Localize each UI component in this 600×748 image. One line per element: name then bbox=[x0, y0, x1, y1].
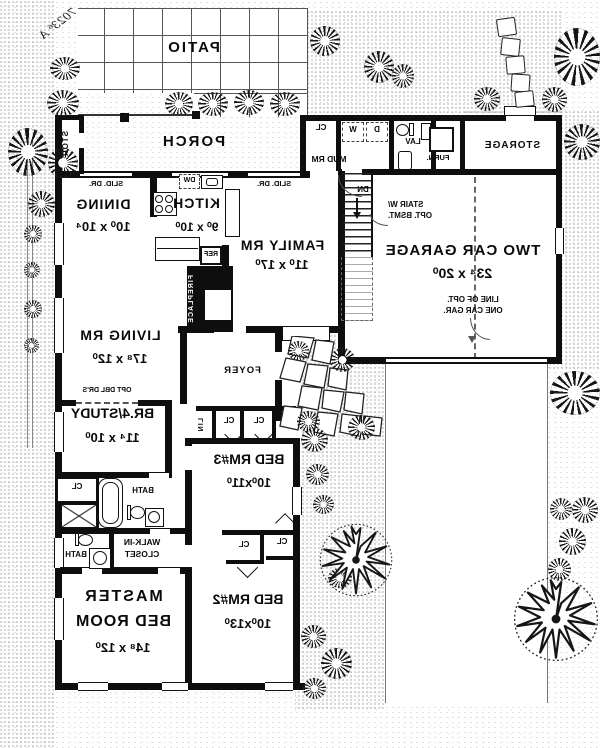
stepping-stone bbox=[505, 55, 525, 75]
bath-label: BATH bbox=[122, 487, 164, 496]
bed2-label: BED RM#2 bbox=[200, 592, 296, 608]
dryer-label: D bbox=[366, 126, 388, 135]
bush-icon bbox=[165, 92, 193, 116]
sink-icon bbox=[93, 551, 107, 565]
wall bbox=[389, 121, 394, 171]
window bbox=[54, 298, 64, 353]
toilet-icon bbox=[75, 533, 79, 546]
porch-post bbox=[192, 111, 200, 119]
window bbox=[54, 598, 64, 640]
porch-edge bbox=[78, 114, 199, 116]
dining-label: DINING bbox=[58, 197, 148, 213]
arrow-icon bbox=[468, 336, 476, 343]
sink-icon bbox=[148, 511, 160, 523]
br4-study-dim: 11⁴ x 10⁰ bbox=[60, 431, 165, 446]
toilet-icon bbox=[78, 534, 93, 546]
living-room-dim: 17⁸ x 12⁰ bbox=[68, 352, 172, 367]
sliding-door bbox=[80, 172, 132, 177]
garage-label: TWO CAR GARAGE bbox=[370, 243, 555, 260]
bush-icon bbox=[288, 341, 309, 361]
opt-dbl-doors-label: OPT DBL DR'S bbox=[74, 387, 140, 395]
tree-icon bbox=[554, 28, 600, 86]
bed3-label: BED RM#3 bbox=[200, 452, 298, 468]
furnace-icon bbox=[429, 127, 454, 152]
sliding-door-label: SLID. DR. bbox=[248, 180, 300, 188]
arrow-icon bbox=[353, 212, 361, 219]
closet-label: CL bbox=[216, 417, 242, 426]
furnace-label: FURN. bbox=[416, 154, 460, 162]
tree-icon bbox=[542, 87, 567, 112]
sliding-door bbox=[248, 172, 300, 177]
door-gap bbox=[158, 568, 180, 574]
stair-note-line2: OPT. BSMT. bbox=[388, 212, 450, 221]
tree-icon bbox=[24, 262, 40, 278]
sliding-door-label: SLID. DR. bbox=[80, 180, 132, 188]
lav-label: LAV bbox=[396, 138, 430, 147]
window bbox=[292, 487, 302, 515]
fireplace-label: FIREPLACE bbox=[188, 269, 201, 329]
wall bbox=[260, 530, 264, 564]
linen-closet-label: LIN bbox=[198, 411, 212, 439]
laundry-sink-icon bbox=[398, 151, 412, 170]
patio-label: PATIO bbox=[78, 40, 308, 57]
foyer-label: FOYER bbox=[214, 366, 270, 377]
br4-study-label: BR.4/STUDY bbox=[60, 406, 165, 422]
kitchen-counter bbox=[157, 248, 198, 249]
tree-icon bbox=[8, 128, 48, 176]
tree-icon bbox=[310, 26, 340, 56]
family-room-dim: 11⁰ x 17⁰ bbox=[226, 258, 338, 273]
door-gap bbox=[184, 446, 193, 470]
burner-icon bbox=[155, 195, 163, 203]
dishwasher-label: DW bbox=[179, 177, 200, 185]
stepping-stone bbox=[500, 37, 521, 57]
bed2-dim: 10⁰x13⁰ bbox=[200, 617, 296, 632]
toilet-icon bbox=[130, 506, 145, 519]
bush-icon bbox=[348, 415, 375, 440]
large-tree-icon bbox=[318, 522, 394, 598]
opt-garage-note-line2: ONE CAR GAR. bbox=[428, 307, 518, 316]
bathtub-icon bbox=[102, 482, 119, 524]
window bbox=[555, 228, 564, 254]
closet-label: CL bbox=[304, 124, 338, 133]
stairs-dn-label: DN bbox=[350, 186, 376, 195]
walkin-label-line1: WALK-IN bbox=[112, 538, 172, 548]
wall bbox=[165, 400, 172, 478]
closet-label: CL bbox=[57, 483, 97, 492]
window bbox=[265, 682, 293, 691]
garage-door bbox=[386, 358, 547, 363]
mirrored-floor-plan: 7023⁶ A PATIO PORCH bbox=[0, 0, 600, 748]
toilet-icon bbox=[396, 124, 409, 136]
door-gap bbox=[149, 473, 169, 478]
tree-icon bbox=[48, 148, 78, 178]
master-label-line1: MASTER bbox=[66, 588, 180, 606]
tree-icon bbox=[303, 678, 326, 699]
storage-label: STORAGE bbox=[466, 140, 558, 151]
closet-label: CL bbox=[267, 538, 297, 547]
tree-icon bbox=[364, 51, 394, 83]
kitchen-label: KITCH bbox=[164, 196, 228, 212]
family-room-label: FAMILY RM bbox=[226, 238, 338, 254]
wall bbox=[180, 330, 187, 404]
tree-icon bbox=[550, 371, 600, 415]
wall bbox=[79, 115, 84, 133]
staircase-optional bbox=[341, 257, 373, 321]
tree-icon bbox=[47, 90, 79, 116]
arrow-icon bbox=[356, 198, 358, 212]
garage-dim: 23⁴ x 20⁰ bbox=[370, 266, 555, 282]
stair-note-line1: STAIR W/ bbox=[388, 201, 450, 210]
tree-icon bbox=[392, 64, 414, 88]
master-dim: 14⁸ x 12⁰ bbox=[66, 641, 180, 656]
toilet-icon bbox=[127, 505, 131, 520]
stepping-stone bbox=[496, 17, 517, 37]
kitchen-sink-icon bbox=[206, 178, 218, 186]
toilet-icon bbox=[409, 123, 414, 136]
tree-icon bbox=[24, 225, 42, 243]
window bbox=[78, 682, 108, 691]
tree-icon bbox=[24, 300, 42, 318]
tree-icon bbox=[301, 625, 326, 648]
porch-post bbox=[120, 113, 129, 122]
walkin-label-line2: CLOSET bbox=[112, 550, 172, 560]
large-tree-icon bbox=[512, 575, 600, 663]
shower-icon bbox=[61, 504, 97, 528]
wall bbox=[266, 556, 298, 560]
master-label-line2: BED ROOM bbox=[66, 613, 180, 631]
tree-icon bbox=[28, 191, 55, 217]
tree-icon bbox=[301, 428, 328, 452]
bush-icon bbox=[198, 92, 228, 116]
property-line bbox=[27, 140, 33, 448]
bed3-dim: 10⁰x11⁰ bbox=[200, 476, 298, 490]
wall bbox=[79, 148, 84, 174]
tree-icon bbox=[24, 338, 39, 353]
door-gap bbox=[150, 529, 170, 534]
wall bbox=[60, 528, 192, 534]
living-room-label: LIVING RM bbox=[68, 328, 172, 344]
tree-icon bbox=[550, 498, 572, 520]
tree-icon bbox=[474, 87, 500, 111]
mud-room-label: MUD RM bbox=[301, 155, 357, 165]
dining-dim: 10⁰ x 10⁴ bbox=[58, 220, 148, 235]
tree-icon bbox=[572, 497, 598, 523]
window bbox=[162, 682, 188, 691]
bush-icon bbox=[270, 92, 300, 116]
closet-label: CL bbox=[246, 417, 272, 426]
wall bbox=[460, 121, 465, 171]
burner-icon bbox=[155, 205, 163, 213]
tree-icon bbox=[50, 57, 80, 80]
floor-plan-sheet: 7023⁶ A PATIO PORCH bbox=[0, 0, 600, 748]
refrigerator-label: REF bbox=[200, 251, 222, 259]
closet-label: CL bbox=[228, 541, 260, 550]
opt-garage-note-line1: LINE OF OPT. bbox=[428, 296, 518, 305]
stepping-stone bbox=[514, 90, 535, 108]
tree-icon bbox=[306, 464, 329, 485]
porch-label: PORCH bbox=[78, 134, 308, 151]
tree-icon bbox=[564, 124, 600, 160]
bush-icon bbox=[330, 348, 355, 372]
tree-icon bbox=[559, 528, 586, 555]
door-gap bbox=[184, 545, 193, 567]
tree-icon bbox=[321, 648, 352, 679]
kitchen-dim: 9⁰ x 10⁰ bbox=[164, 221, 230, 234]
bush-icon bbox=[234, 90, 264, 115]
firebox bbox=[205, 290, 231, 320]
tree-icon bbox=[313, 495, 334, 514]
kitchen-counter bbox=[155, 237, 200, 261]
washer-label: W bbox=[342, 126, 364, 135]
